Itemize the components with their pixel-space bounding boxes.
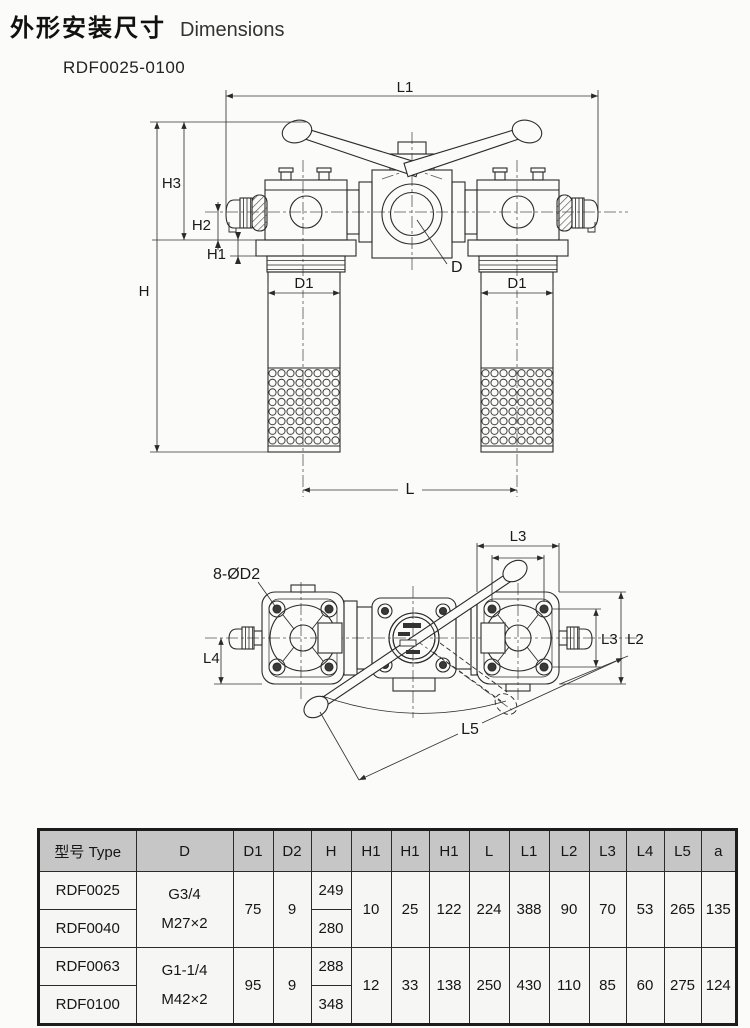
cell-d2: 9 bbox=[273, 948, 311, 1025]
dim-label-h1: H1 bbox=[207, 246, 226, 263]
thread-line-2: M27×2 bbox=[137, 910, 233, 939]
thread-line-1: G3/4 bbox=[137, 881, 233, 910]
cell-h: 288 bbox=[311, 948, 351, 986]
cell-model: RDF0040 bbox=[39, 910, 136, 948]
table-header-row: 型号 Type D D1 D2 H H1 H1 H1 L L1 L2 L3 L4… bbox=[39, 830, 736, 872]
column-header-l: L bbox=[469, 830, 509, 872]
cell-l4: 53 bbox=[626, 872, 664, 948]
dim-label-l3-right: L3 bbox=[601, 631, 618, 648]
cell-l2: 110 bbox=[549, 948, 589, 1025]
page-title: 外形安装尺寸Dimensions bbox=[10, 8, 284, 43]
cell-l: 250 bbox=[469, 948, 509, 1025]
cell-d2: 9 bbox=[273, 872, 311, 948]
cell-thread: G1-1/4 M42×2 bbox=[136, 948, 233, 1025]
dim-label-l4: L4 bbox=[203, 650, 220, 667]
column-header-l3: L3 bbox=[589, 830, 626, 872]
cell-l4: 60 bbox=[626, 948, 664, 1025]
dim-label-h2: H2 bbox=[192, 217, 211, 234]
dim-label-h3: H3 bbox=[162, 175, 181, 192]
callout-8-d2: 8-ØD2 bbox=[213, 566, 260, 583]
dimensions-table: 型号 Type D D1 D2 H H1 H1 H1 L L1 L2 L3 L4… bbox=[38, 829, 737, 1025]
model-range-label: RDF0025-0100 bbox=[63, 58, 185, 78]
column-header-h1b: H1 bbox=[391, 830, 429, 872]
top-left-head bbox=[229, 585, 344, 684]
column-header-h: H bbox=[311, 830, 351, 872]
column-header-d1: D1 bbox=[233, 830, 273, 872]
dim-label-d: D bbox=[451, 259, 463, 276]
table-row: RDF0025 G3/4 M27×2 75 9 249 10 25 122 22… bbox=[39, 872, 736, 910]
column-header-a: a bbox=[701, 830, 736, 872]
column-header-l5: L5 bbox=[664, 830, 701, 872]
left-filter-unit bbox=[226, 168, 372, 452]
dim-label-l3-top: L3 bbox=[510, 528, 527, 545]
cell-l3: 70 bbox=[589, 872, 626, 948]
cell-h1a: 12 bbox=[351, 948, 391, 1025]
column-header-h1c: H1 bbox=[429, 830, 469, 872]
dim-label-l: L bbox=[406, 481, 415, 498]
cell-h1c: 122 bbox=[429, 872, 469, 948]
top-right-head bbox=[477, 592, 592, 691]
cell-model: RDF0025 bbox=[39, 872, 136, 910]
cell-l2: 90 bbox=[549, 872, 589, 948]
cell-h1b: 33 bbox=[391, 948, 429, 1025]
thread-line-1: G1-1/4 bbox=[137, 957, 233, 986]
cell-a: 135 bbox=[701, 872, 736, 948]
cell-d1: 95 bbox=[233, 948, 273, 1025]
table-row: RDF0063 G1-1/4 M42×2 95 9 288 12 33 138 … bbox=[39, 948, 736, 986]
column-header-d2: D2 bbox=[273, 830, 311, 872]
column-header-d: D bbox=[136, 830, 233, 872]
front-view-drawing: L1 H3 H2 H1 H D1 D1 D L bbox=[0, 78, 750, 510]
dim-label-l5: L5 bbox=[461, 721, 479, 738]
cell-l5: 275 bbox=[664, 948, 701, 1025]
cell-l3: 85 bbox=[589, 948, 626, 1025]
cell-l: 224 bbox=[469, 872, 509, 948]
cell-d1: 75 bbox=[233, 872, 273, 948]
cell-thread: G3/4 M27×2 bbox=[136, 872, 233, 948]
right-filter-unit bbox=[452, 168, 598, 452]
cell-model: RDF0100 bbox=[39, 986, 136, 1025]
top-view-drawing: 8-ØD2 L3 L3 L2 L4 L5 bbox=[0, 510, 750, 820]
cell-h1c: 138 bbox=[429, 948, 469, 1025]
column-header-l2: L2 bbox=[549, 830, 589, 872]
dim-label-d1-left: D1 bbox=[294, 275, 313, 292]
column-header-h1a: H1 bbox=[351, 830, 391, 872]
title-english: Dimensions bbox=[180, 19, 284, 41]
dim-label-l2: L2 bbox=[627, 631, 644, 648]
cell-l1: 388 bbox=[509, 872, 549, 948]
page-root: 外形安装尺寸Dimensions RDF0025-0100 bbox=[0, 0, 750, 1028]
dim-label-d1-right: D1 bbox=[507, 275, 526, 292]
cell-h: 348 bbox=[311, 986, 351, 1025]
column-header-type: 型号 Type bbox=[39, 830, 136, 872]
cell-a: 124 bbox=[701, 948, 736, 1025]
cell-h: 280 bbox=[311, 910, 351, 948]
cell-h: 249 bbox=[311, 872, 351, 910]
dim-label-h: H bbox=[139, 283, 150, 300]
dim-label-l1: L1 bbox=[397, 79, 414, 96]
title-chinese: 外形安装尺寸 bbox=[10, 15, 166, 42]
column-header-l4: L4 bbox=[626, 830, 664, 872]
cell-h1a: 10 bbox=[351, 872, 391, 948]
cell-l1: 430 bbox=[509, 948, 549, 1025]
cell-h1b: 25 bbox=[391, 872, 429, 948]
thread-line-2: M42×2 bbox=[137, 986, 233, 1015]
column-header-l1: L1 bbox=[509, 830, 549, 872]
cell-model: RDF0063 bbox=[39, 948, 136, 986]
cell-l5: 265 bbox=[664, 872, 701, 948]
